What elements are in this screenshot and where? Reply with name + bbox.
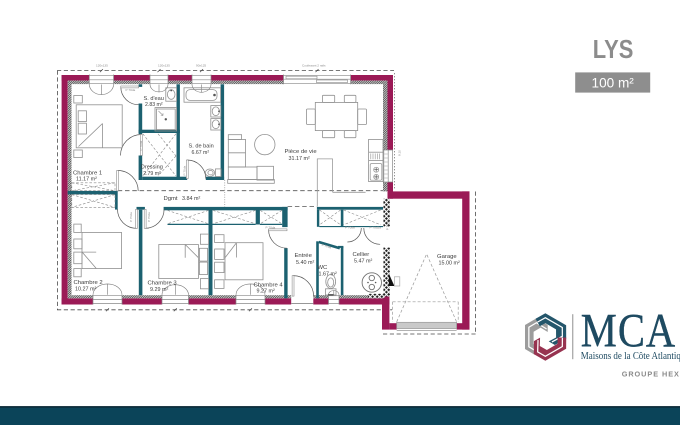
svg-text:9.29 m²: 9.29 m² <box>150 287 168 293</box>
svg-text:1.67 m²: 1.67 m² <box>319 272 337 278</box>
svg-text:11.17 m²: 11.17 m² <box>76 177 97 183</box>
svg-text:90x125: 90x125 <box>196 63 206 67</box>
svg-text:8.10: 8.10 <box>398 150 402 156</box>
svg-text:Pièce de vie: Pièce de vie <box>285 149 318 155</box>
svg-text:S. de bain: S. de bain <box>189 144 214 150</box>
svg-text:MCA: MCA <box>581 303 676 357</box>
svg-text:15.00 m²: 15.00 m² <box>439 261 460 267</box>
svg-text:100 m²: 100 m² <box>592 75 635 90</box>
svg-text:P 70da: P 70da <box>139 140 143 150</box>
svg-text:10.27 m²: 10.27 m² <box>75 286 96 292</box>
svg-text:WC: WC <box>318 265 329 271</box>
svg-text:120x135: 120x135 <box>158 63 170 67</box>
svg-text:31.17 m²: 31.17 m² <box>289 156 310 162</box>
svg-text:GROUPE HEXAOM: GROUPE HEXAOM <box>622 370 680 379</box>
svg-text:2.79 m²: 2.79 m² <box>143 171 161 177</box>
svg-text:Coulissant 2 rails: Coulissant 2 rails <box>302 63 326 67</box>
svg-text:Chambre 3: Chambre 3 <box>148 281 178 287</box>
svg-text:Maisons de la Côte Atlantique: Maisons de la Côte Atlantique <box>581 350 680 362</box>
svg-text:2.83 m²: 2.83 m² <box>145 102 163 108</box>
svg-text:S. d'eau: S. d'eau <box>144 96 164 102</box>
svg-text:120x135: 120x135 <box>96 63 108 67</box>
svg-text:P 70da: P 70da <box>147 212 151 222</box>
svg-text:6.67 m²: 6.67 m² <box>192 150 210 156</box>
svg-text:P 70da: P 70da <box>126 88 136 92</box>
svg-text:Entrée: Entrée <box>295 253 313 259</box>
svg-text:Garage: Garage <box>437 254 457 260</box>
svg-text:Dgmt: Dgmt <box>164 196 178 202</box>
svg-text:Chambre 4: Chambre 4 <box>254 282 284 288</box>
svg-text:9.27 m²: 9.27 m² <box>257 289 275 295</box>
svg-text:P 70da: P 70da <box>385 220 389 230</box>
svg-text:5.40 m²: 5.40 m² <box>296 260 314 266</box>
svg-text:P 70da: P 70da <box>266 226 276 230</box>
svg-text:Dressing: Dressing <box>141 165 163 171</box>
svg-text:P 70da: P 70da <box>183 165 187 175</box>
svg-text:Chambre 1: Chambre 1 <box>73 170 102 176</box>
svg-text:P 70d2a: P 70d2a <box>370 226 382 230</box>
svg-text:LYS: LYS <box>593 35 634 64</box>
svg-text:3.84 m²: 3.84 m² <box>182 196 200 202</box>
svg-text:5.47 m²: 5.47 m² <box>354 258 372 264</box>
svg-text:Chambre 2: Chambre 2 <box>74 280 103 286</box>
svg-text:P 70da: P 70da <box>129 212 133 222</box>
svg-text:P 70da: P 70da <box>345 226 355 230</box>
svg-text:Cellier: Cellier <box>353 252 370 258</box>
